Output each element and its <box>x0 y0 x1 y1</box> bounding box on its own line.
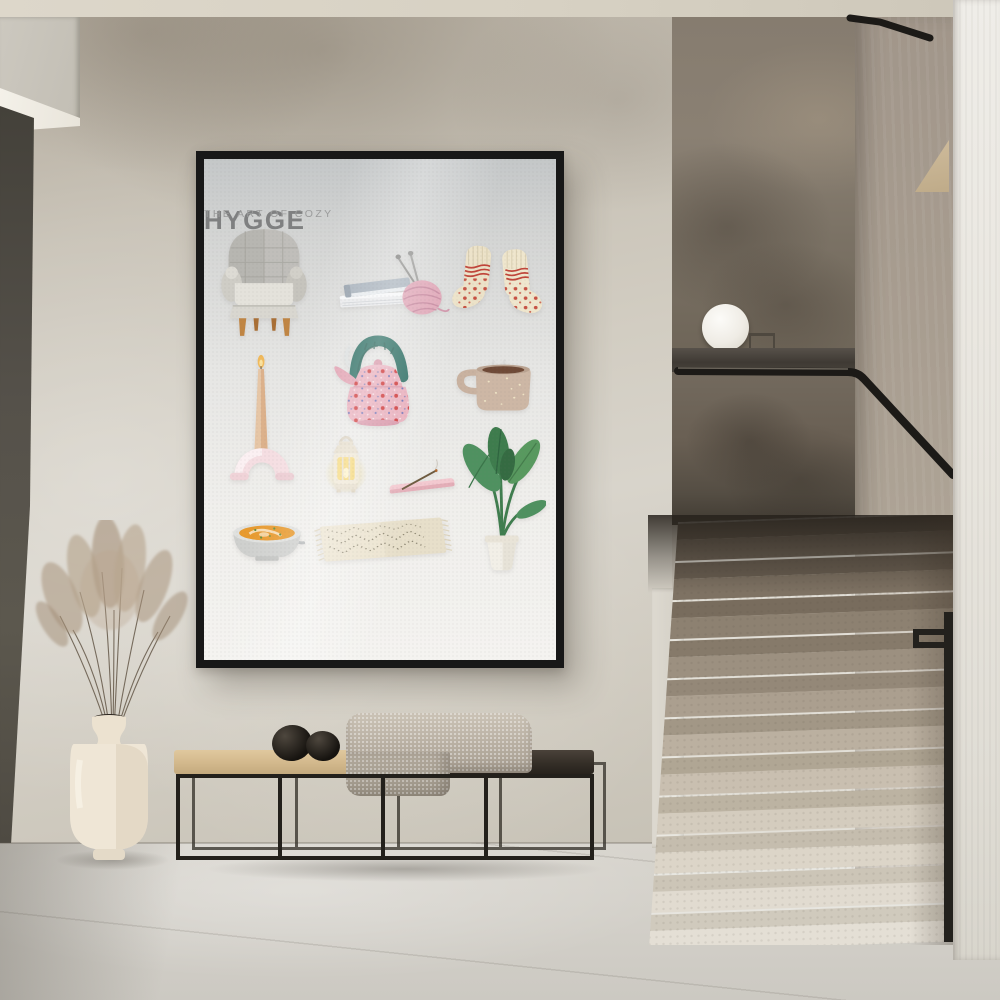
staircase <box>648 515 955 945</box>
pampas-grass <box>18 520 213 735</box>
white-pillar <box>953 0 1000 960</box>
landing-shadow <box>648 515 955 593</box>
poster-frame: HYGGE THE ART OF COZY <box>196 151 564 668</box>
bench-metal-frame <box>176 774 594 860</box>
hygge-poster: HYGGE THE ART OF COZY <box>204 159 556 660</box>
stairwell-back-wall <box>672 17 855 355</box>
interior-scene: HYGGE THE ART OF COZY <box>0 0 1000 1000</box>
poster-paper-grain <box>204 159 556 660</box>
ceiling <box>0 0 1000 17</box>
stair-half-wall <box>672 372 855 525</box>
sphere-lamp <box>702 304 749 351</box>
landing-ledge <box>672 348 855 372</box>
ceramic-vase <box>66 712 152 862</box>
stair-side-shadow <box>910 515 955 945</box>
